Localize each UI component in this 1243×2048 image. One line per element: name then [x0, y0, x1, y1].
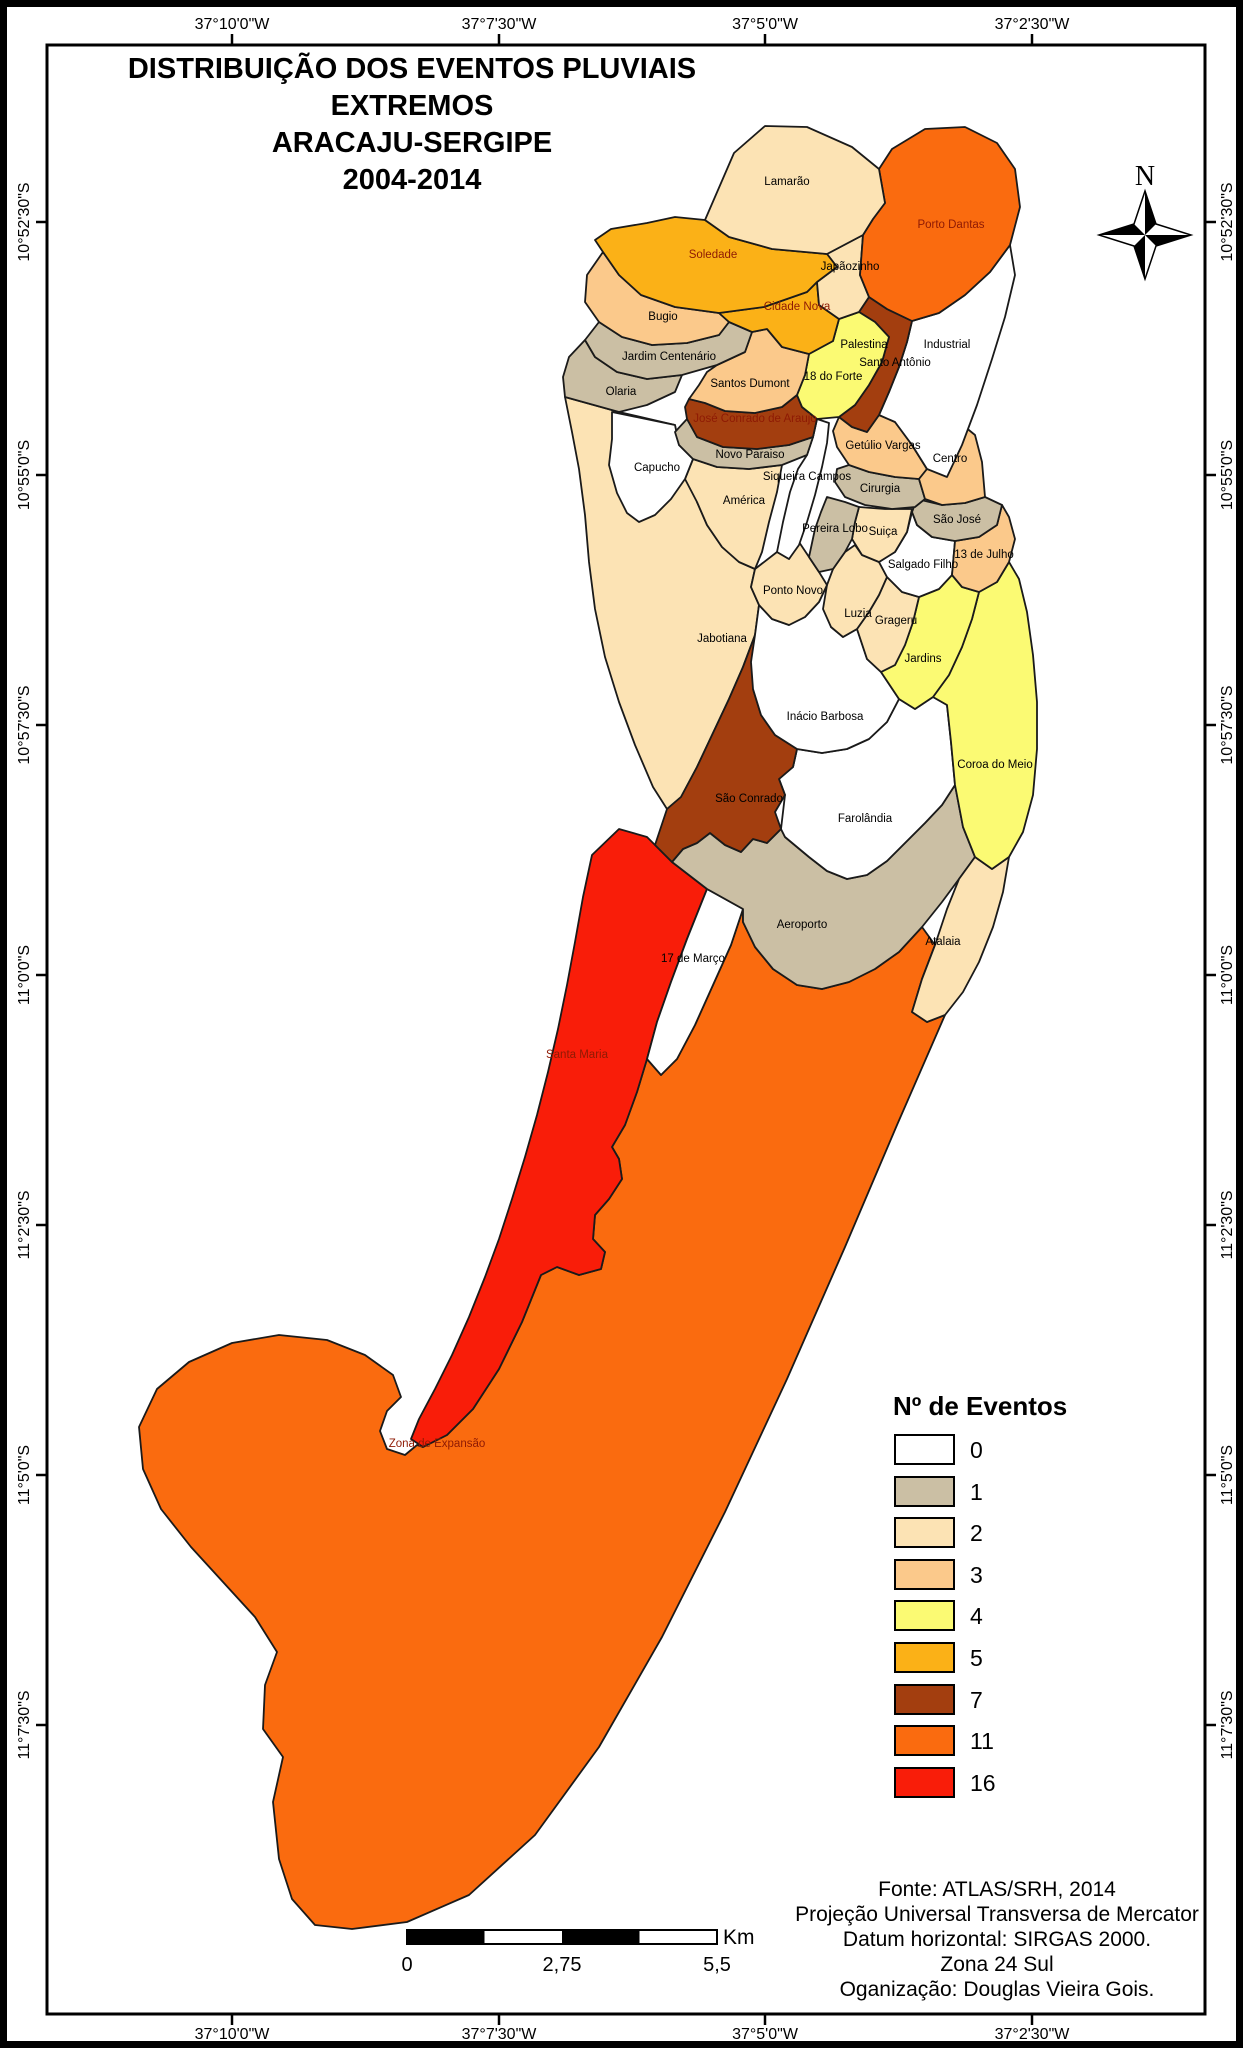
- region-label-ponto-novo: Ponto Novo: [763, 585, 823, 597]
- region-label-jose-conrado-de-araujo: José Conrado de Araujo: [693, 413, 816, 425]
- coord-right-6: 11°5'0"S: [1219, 1445, 1237, 1505]
- legend-value-0: 0: [970, 1437, 983, 1464]
- coord-top-4: 37°2'30"W: [995, 16, 1070, 34]
- coord-bottom-2: 37°7'30"W: [462, 2026, 537, 2044]
- region-label-13-de-julho: 13 de Julho: [954, 549, 1013, 561]
- coord-right-2: 10°55'0"S: [1219, 440, 1237, 510]
- region-label-capucho: Capucho: [634, 462, 680, 474]
- region-label-soledade: Soledade: [689, 249, 738, 261]
- region-label-inacio-barbosa: Inácio Barbosa: [787, 711, 864, 723]
- region-label-porto-dantas: Porto Dantas: [917, 219, 984, 231]
- region-label-luzia: Luzia: [844, 608, 872, 620]
- credits-block: Fonte: ATLAS/SRH, 2014 Projeção Universa…: [777, 1877, 1217, 2002]
- coord-left-6: 11°5'0"S: [16, 1445, 34, 1505]
- legend-swatch-0: [894, 1434, 955, 1465]
- region-label-jabotiana: Jabotiana: [697, 633, 747, 645]
- legend-swatch-8: [894, 1767, 955, 1798]
- region-label-lamarao: Lamarão: [764, 176, 809, 188]
- region-label-japaozinho: Japãozinho: [821, 261, 880, 273]
- coord-left-2: 10°55'0"S: [16, 440, 34, 510]
- coord-top-1: 37°10'0"W: [195, 16, 270, 34]
- region-label-jardins: Jardins: [904, 653, 941, 665]
- title-line-3: 2004-2014: [67, 162, 757, 199]
- region-label-cidade-nova: Cidade Nova: [764, 301, 831, 313]
- region-label-santo-antonio: Santo Antônio: [859, 357, 931, 369]
- credits-line-5: Oganização: Douglas Vieira Gois.: [777, 1977, 1217, 2002]
- region-label-suica: Suiça: [869, 526, 898, 538]
- region-label-getulio-vargas: Getúlio Vargas: [845, 440, 920, 452]
- legend-value-3: 3: [970, 1562, 983, 1589]
- region-label-olaria: Olaria: [606, 386, 637, 398]
- title-line-2: ARACAJU-SERGIPE: [67, 125, 757, 162]
- coord-left-5: 11°2'30"S: [16, 1190, 34, 1259]
- region-label-salgado-filho: Salgado Filho: [888, 559, 958, 571]
- region-label-17-de-marco: 17 de Março: [661, 953, 725, 965]
- coord-right-3: 10°57'30"S: [1219, 685, 1237, 764]
- scale-label-0: 0: [401, 1954, 412, 1976]
- scale-label-mid: 2,75: [543, 1954, 582, 1976]
- credits-line-4: Zona 24 Sul: [777, 1952, 1217, 1977]
- region-label-bugio: Bugio: [648, 311, 677, 323]
- coord-top-2: 37°7'30"W: [462, 16, 537, 34]
- legend-value-8: 16: [970, 1770, 996, 1797]
- region-label-siqueira-campos: Siqueira Campos: [763, 471, 851, 483]
- map-canvas: Jabotiana Zona de Expansão Santa Maria 1…: [7, 7, 1243, 2048]
- region-label-atalaia: Atalaia: [925, 936, 961, 948]
- region-label-palestina: Palestina: [840, 339, 888, 351]
- region-label-sao-conrado: São Conrado: [715, 793, 783, 805]
- coord-bottom-1: 37°10'0"W: [195, 2026, 270, 2044]
- region-label-aeroporto: Aeroporto: [777, 919, 828, 931]
- region-zona-de-expansao: [139, 909, 945, 1929]
- region-label-jardim-centenario: Jardim Centenário: [622, 351, 716, 363]
- north-label: N: [1135, 161, 1155, 192]
- region-label-coroa-do-meio: Coroa do Meio: [957, 759, 1032, 771]
- legend-swatch-6: [894, 1684, 955, 1715]
- legend-swatch-3: [894, 1559, 955, 1590]
- coord-bottom-4: 37°2'30"W: [995, 2026, 1070, 2044]
- scale-bar: 0 2,75 5,5 Km: [401, 1926, 754, 1976]
- map-sheet: Jabotiana Zona de Expansão Santa Maria 1…: [0, 0, 1243, 2048]
- coord-right-5: 11°2'30"S: [1219, 1190, 1237, 1259]
- coord-right-4: 11°0'0"S: [1219, 945, 1237, 1005]
- credits-line-1: Fonte: ATLAS/SRH, 2014: [777, 1877, 1217, 1902]
- region-label-industrial: Industrial: [924, 339, 971, 351]
- coord-left-4: 11°0'0"S: [16, 945, 34, 1005]
- legend-value-5: 5: [970, 1645, 983, 1672]
- scale-unit-label: Km: [723, 1926, 755, 1949]
- scale-label-max: 5,5: [703, 1954, 731, 1976]
- region-label-centro: Centro: [933, 453, 968, 465]
- region-label-novo-paraiso: Novo Paraiso: [715, 449, 784, 461]
- region-label-santa-maria: Santa Maria: [546, 1049, 609, 1061]
- credits-line-3: Datum horizontal: SIRGAS 2000.: [777, 1927, 1217, 1952]
- legend-value-2: 2: [970, 1520, 983, 1547]
- coord-top-3: 37°5'0"W: [732, 16, 798, 34]
- region-label-18-do-forte: 18 do Forte: [804, 371, 863, 383]
- region-label-pereira-lobo: Pereira Lobo: [802, 523, 868, 535]
- coord-right-1: 10°52'30"S: [1219, 182, 1237, 261]
- legend-swatch-2: [894, 1517, 955, 1548]
- coord-right-7: 11°7'30"S: [1219, 1690, 1237, 1759]
- region-label-farolandia: Farolândia: [838, 813, 893, 825]
- legend-swatch-1: [894, 1476, 955, 1507]
- legend-value-1: 1: [970, 1479, 983, 1506]
- coord-left-3: 10°57'30"S: [16, 685, 34, 764]
- region-label-zona-de-expansao: Zona de Expansão: [389, 1438, 486, 1450]
- coord-bottom-3: 37°5'0"W: [732, 2026, 798, 2044]
- legend-value-7: 11: [970, 1728, 994, 1755]
- region-label-grageru: Grageru: [875, 615, 917, 627]
- region-label-america: América: [723, 495, 766, 507]
- legend-value-6: 7: [970, 1687, 983, 1714]
- region-label-cirurgia: Cirurgia: [860, 483, 901, 495]
- title-line-1: DISTRIBUIÇÃO DOS EVENTOS PLUVIAIS EXTREM…: [67, 51, 757, 125]
- coord-left-7: 11°7'30"S: [16, 1690, 34, 1759]
- north-arrow-icon: N: [1099, 161, 1191, 279]
- credits-line-2: Projeção Universal Transversa de Mercato…: [777, 1902, 1217, 1927]
- legend-swatch-7: [894, 1725, 955, 1756]
- legend-value-4: 4: [970, 1603, 983, 1630]
- region-label-santos-dumont: Santos Dumont: [710, 378, 790, 390]
- region-label-sao-jose: São José: [933, 514, 981, 526]
- legend-title: Nº de Eventos: [893, 1391, 1067, 1422]
- legend-swatch-4: [894, 1600, 955, 1631]
- map-title-block: DISTRIBUIÇÃO DOS EVENTOS PLUVIAIS EXTREM…: [67, 51, 757, 199]
- coord-left-1: 10°52'30"S: [16, 182, 34, 261]
- legend-swatch-5: [894, 1642, 955, 1673]
